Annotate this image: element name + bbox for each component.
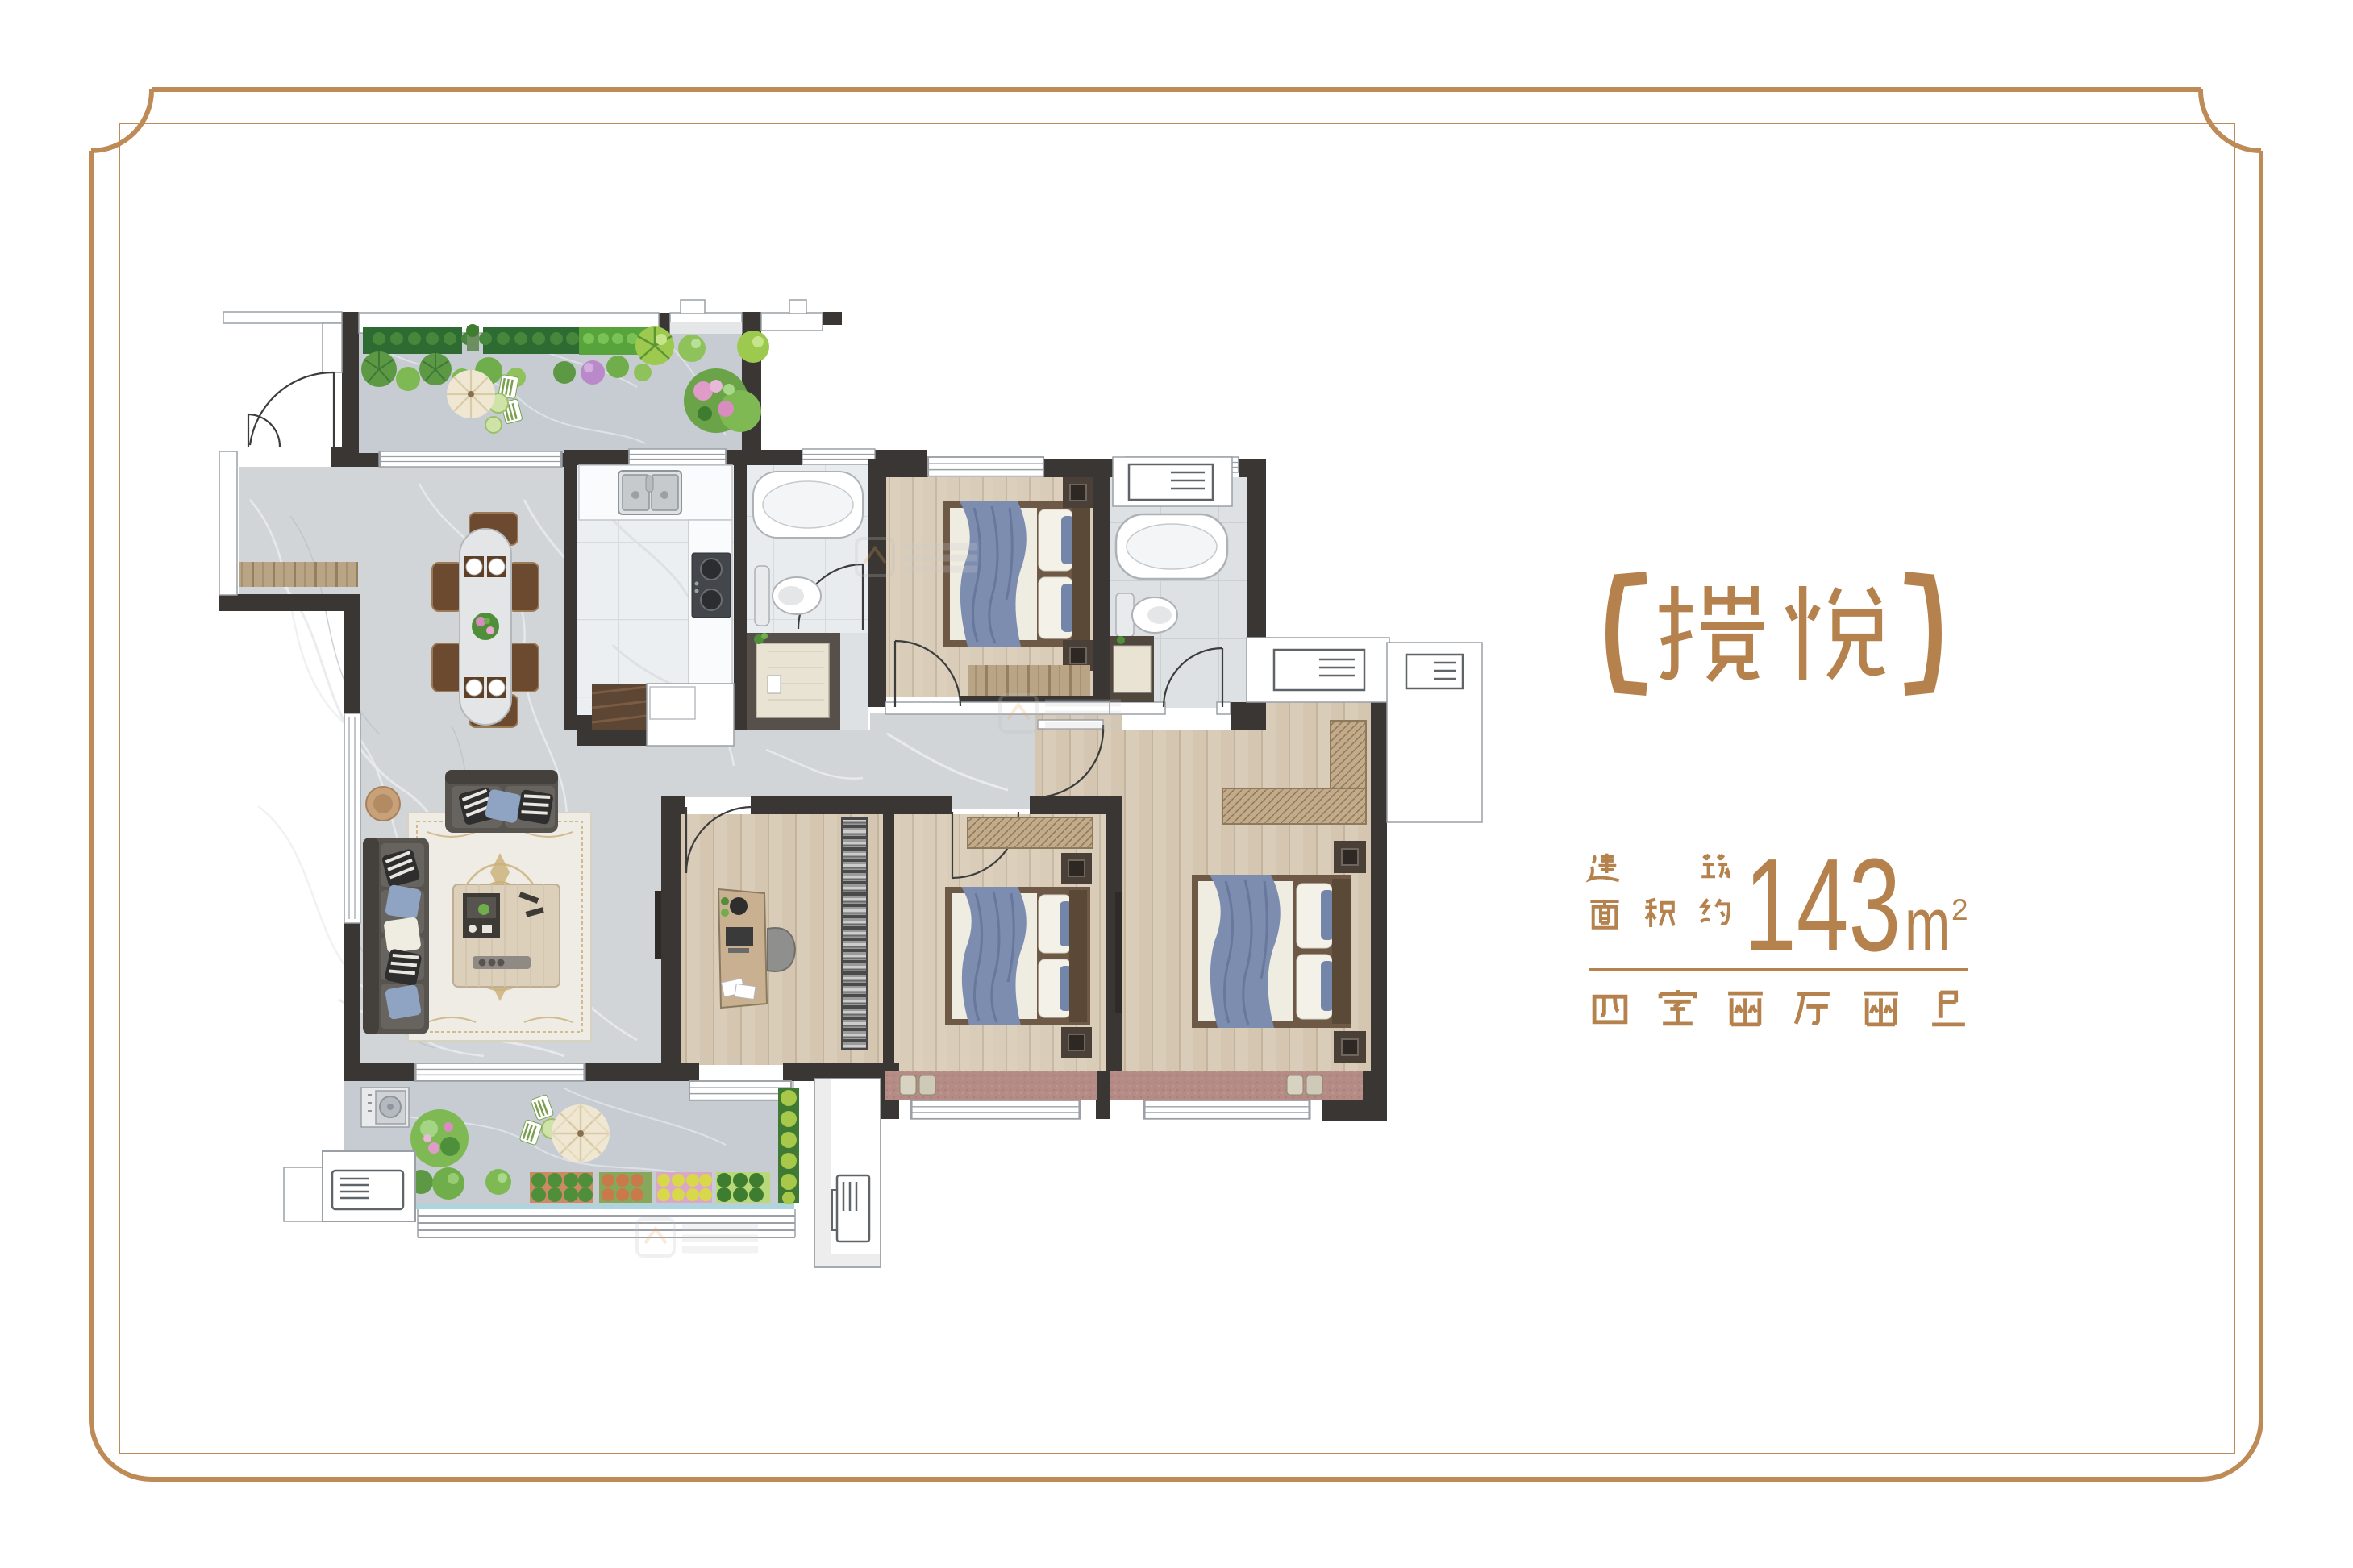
svg-text:143: 143	[1744, 831, 1901, 979]
svg-text:m: m	[1905, 883, 1950, 967]
svg-text:2: 2	[1951, 893, 1968, 926]
